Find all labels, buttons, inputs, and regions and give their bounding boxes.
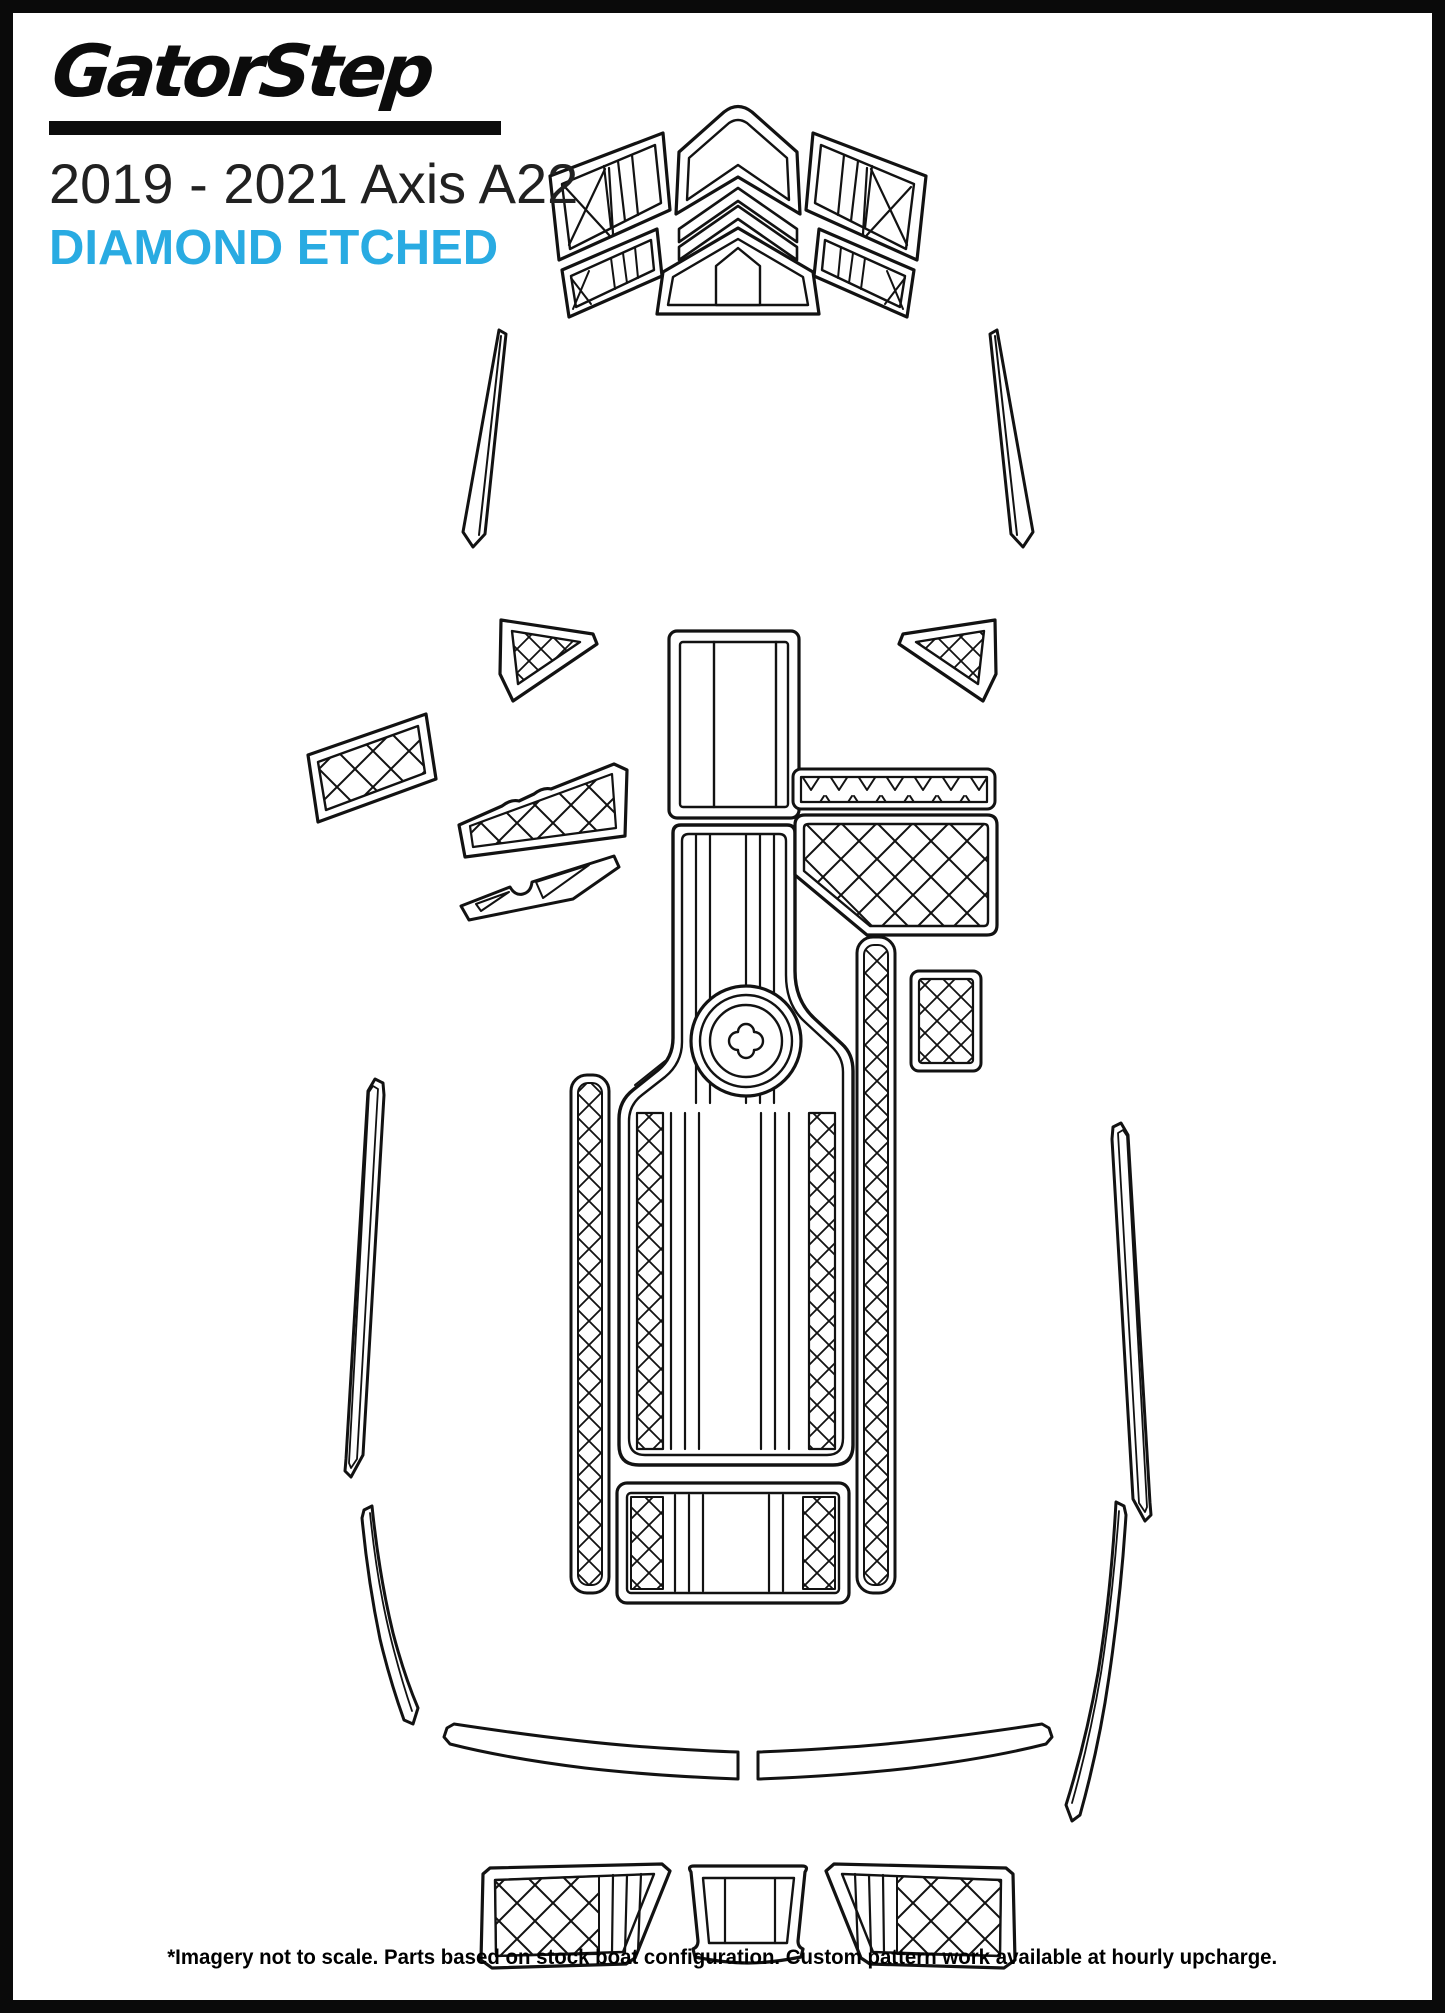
- logo-underline-rule: [49, 121, 501, 135]
- walkway-top-pad: [669, 631, 799, 818]
- starboard-zigzag-strip: [793, 769, 995, 809]
- starboard-locker-pad: [795, 815, 997, 935]
- port-bow-step-pad: [308, 714, 436, 822]
- port-triangle-pad: [500, 620, 597, 701]
- boat-pad-diagram: [13, 13, 1445, 2013]
- port-sidewall-lower-pad: [461, 856, 619, 920]
- disclaimer-text: *Imagery not to scale. Parts based on st…: [167, 1945, 1277, 1970]
- page-subtitle: DIAMOND ETCHED: [49, 220, 578, 276]
- main-floor-pad: [619, 825, 853, 1465]
- port-rear-curved-strip: [362, 1506, 418, 1724]
- port-gunwale-strip: [345, 1079, 384, 1477]
- header: GatorStep 2019 - 2021 Axis A22 DIAMOND E…: [49, 35, 578, 276]
- swim-platform-starboard-half: [758, 1724, 1052, 1779]
- gatorstep-logo: GatorStep: [49, 35, 586, 107]
- footer: *Imagery not to scale. Parts based on st…: [13, 1945, 1432, 1970]
- windshield-port-strip: [463, 330, 506, 547]
- starboard-small-pad: [911, 971, 981, 1071]
- ski-pylon-circle: [691, 986, 801, 1096]
- starboard-rear-curved-strip: [1066, 1502, 1126, 1821]
- starboard-gunwale-strip: [1112, 1123, 1151, 1521]
- port-sidewall-upper-pad: [459, 764, 627, 857]
- swim-platform-port-half: [444, 1724, 738, 1779]
- windshield-starboard-strip: [990, 330, 1033, 547]
- starboard-border-strip: [857, 937, 895, 1593]
- starboard-triangle-pad: [899, 620, 996, 701]
- page-title: 2019 - 2021 Axis A22: [49, 151, 578, 216]
- rear-bench-pad: [617, 1483, 849, 1603]
- port-border-strip: [571, 1075, 609, 1593]
- template-sheet: GatorStep 2019 - 2021 Axis A22 DIAMOND E…: [0, 0, 1445, 2013]
